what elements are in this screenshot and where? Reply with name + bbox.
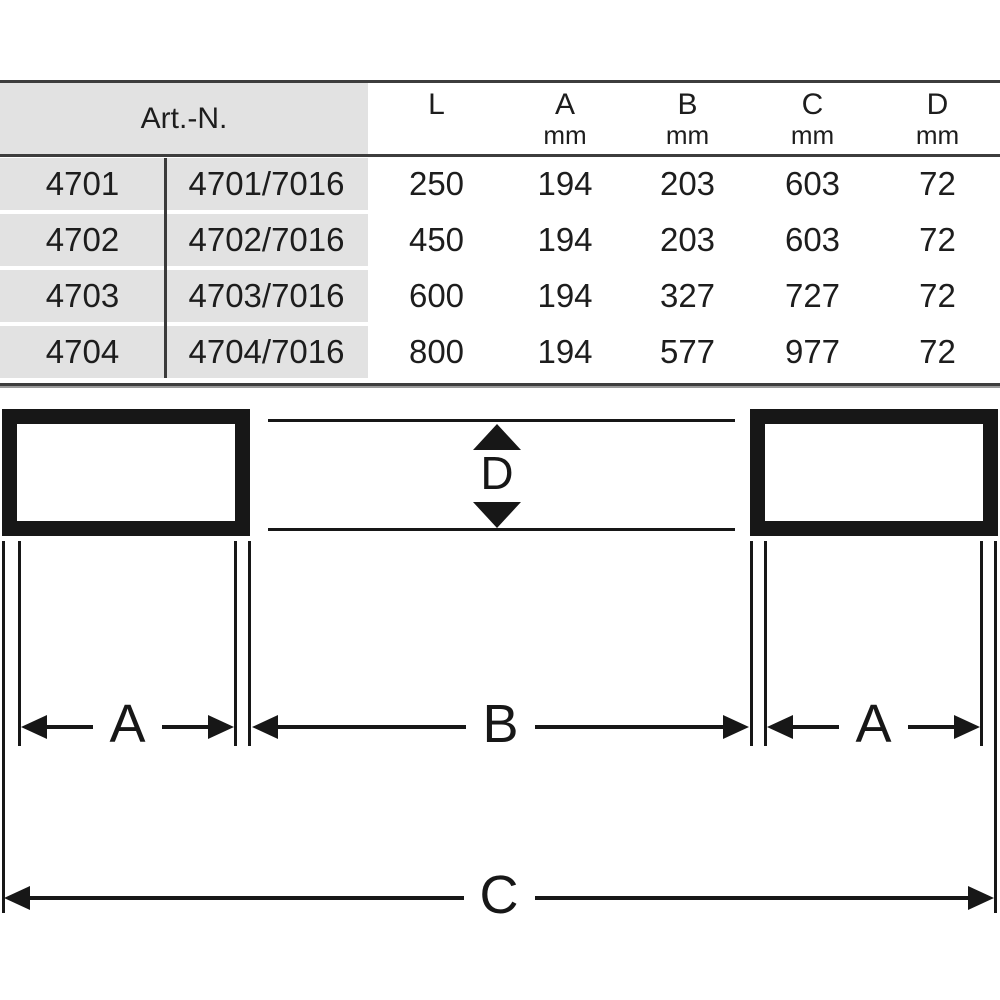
column-letter: C <box>802 89 824 121</box>
dimension-d-top-line <box>268 419 735 422</box>
left-profile-cross-section <box>2 409 250 536</box>
value-l-cell: 800 <box>368 326 505 378</box>
dimension-line <box>535 896 969 900</box>
dimension-c-label: C <box>464 868 535 922</box>
art-number-cell: 4702 <box>0 214 165 266</box>
arrow-left-icon <box>21 715 47 739</box>
value-c-cell: 977 <box>750 326 875 378</box>
extension-line <box>980 541 983 746</box>
extension-line <box>234 541 237 746</box>
table-header-row: Art.-N. L A mm B mm C mm D mm <box>0 83 1000 154</box>
value-b-cell: 203 <box>625 158 750 210</box>
dimension-b-label: B <box>466 697 534 751</box>
dimension-a-left-label: A <box>93 697 161 751</box>
dimension-line <box>162 725 208 729</box>
dimension-line <box>278 725 466 729</box>
column-letter: A <box>555 89 575 121</box>
dimension-a-right: A <box>767 697 980 757</box>
value-a-cell: 194 <box>505 326 625 378</box>
value-b-cell: 577 <box>625 326 750 378</box>
arrow-left-icon <box>4 886 30 910</box>
art-number-cell: 4701 <box>0 158 165 210</box>
art-color-number-cell: 4701/7016 <box>165 158 368 210</box>
extension-line <box>248 541 251 746</box>
value-d-cell: 72 <box>875 270 1000 322</box>
table-body: 4701 4701/7016 250 194 203 603 72 4702 4… <box>0 158 1000 378</box>
value-c-cell: 727 <box>750 270 875 322</box>
dimension-line <box>30 896 464 900</box>
value-c-cell: 603 <box>750 214 875 266</box>
value-b-cell: 327 <box>625 270 750 322</box>
table-header-separator <box>0 154 1000 157</box>
dimension-c: C <box>4 868 994 928</box>
column-letter: B <box>677 89 697 121</box>
value-d-cell: 72 <box>875 326 1000 378</box>
right-profile-cross-section <box>750 409 998 536</box>
dimension-line <box>47 725 93 729</box>
column-letter: L <box>428 89 445 121</box>
dimension-b: B <box>252 697 749 757</box>
value-l-cell: 250 <box>368 158 505 210</box>
arrow-right-icon <box>954 715 980 739</box>
art-number-header: Art.-N. <box>0 83 368 154</box>
column-unit: mm <box>791 121 834 149</box>
arrow-right-icon <box>968 886 994 910</box>
column-unit: mm <box>916 121 959 149</box>
value-d-cell: 72 <box>875 214 1000 266</box>
value-a-cell: 194 <box>505 214 625 266</box>
table-bottom-border <box>0 383 1000 386</box>
column-unit: mm <box>543 121 586 149</box>
value-a-cell: 194 <box>505 270 625 322</box>
column-header-l: L <box>368 83 505 154</box>
column-header-d: D mm <box>875 83 1000 154</box>
extension-line <box>750 541 753 746</box>
column-unit: mm <box>666 121 709 149</box>
spec-sheet-page: Art.-N. L A mm B mm C mm D mm 4701 4701/… <box>0 0 1000 1000</box>
value-l-cell: 450 <box>368 214 505 266</box>
arrow-right-icon <box>723 715 749 739</box>
dimension-line <box>908 725 954 729</box>
dimension-line <box>535 725 723 729</box>
value-c-cell: 603 <box>750 158 875 210</box>
value-a-cell: 194 <box>505 158 625 210</box>
art-column-divider <box>164 158 167 378</box>
dimension-d-label: D <box>480 450 513 496</box>
art-color-number-cell: 4702/7016 <box>165 214 368 266</box>
dimension-line <box>793 725 839 729</box>
value-l-cell: 600 <box>368 270 505 322</box>
column-letter: D <box>927 89 949 121</box>
dimension-a-left: A <box>21 697 234 757</box>
art-number-cell: 4703 <box>0 270 165 322</box>
value-d-cell: 72 <box>875 158 1000 210</box>
arrow-left-icon <box>767 715 793 739</box>
column-header-b: B mm <box>625 83 750 154</box>
extension-line-outer-left <box>2 541 5 913</box>
arrow-left-icon <box>252 715 278 739</box>
dimension-a-right-label: A <box>839 697 907 751</box>
arrow-down-icon <box>473 502 521 528</box>
arrow-right-icon <box>208 715 234 739</box>
dimension-d-bottom-line <box>268 528 735 531</box>
art-color-number-cell: 4703/7016 <box>165 270 368 322</box>
art-color-number-cell: 4704/7016 <box>165 326 368 378</box>
column-header-a: A mm <box>505 83 625 154</box>
extension-line-outer-right <box>994 541 997 913</box>
value-b-cell: 203 <box>625 214 750 266</box>
art-number-cell: 4704 <box>0 326 165 378</box>
column-header-c: C mm <box>750 83 875 154</box>
